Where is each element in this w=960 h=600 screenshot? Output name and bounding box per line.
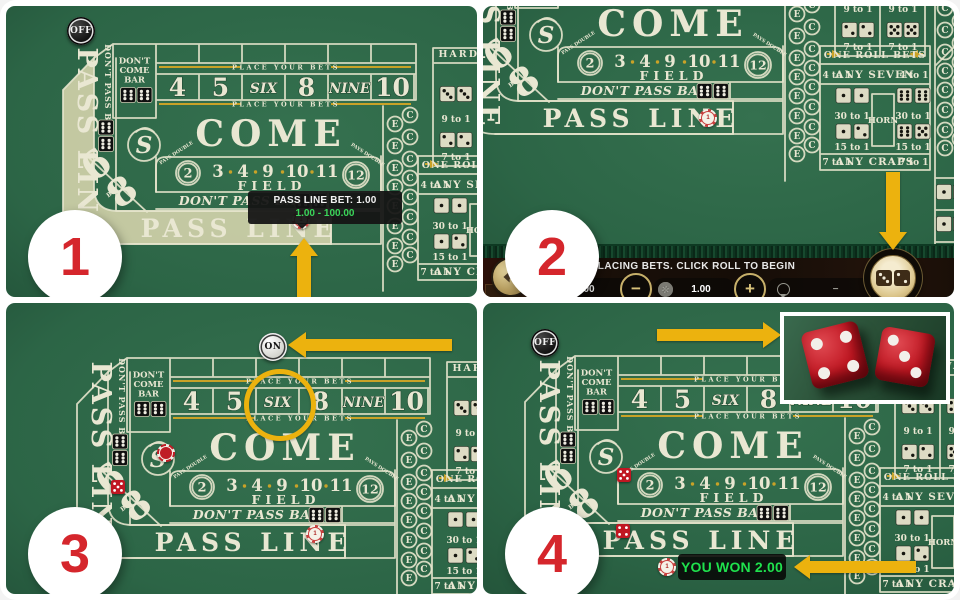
svg-text:E: E bbox=[406, 456, 413, 466]
horn-box: HORN bbox=[928, 538, 954, 548]
svg-text:11: 11 bbox=[718, 52, 741, 71]
point-box-4[interactable]: 4 bbox=[183, 387, 200, 416]
svg-text:E: E bbox=[794, 92, 801, 102]
place-your-bets-bottom: PLACE YOUR BETS bbox=[694, 413, 802, 421]
svg-text:E: E bbox=[854, 495, 861, 505]
svg-text:E: E bbox=[794, 32, 801, 42]
come-area[interactable]: COME bbox=[657, 425, 808, 467]
svg-text:E: E bbox=[794, 132, 801, 142]
svg-text:C: C bbox=[420, 565, 427, 575]
svg-text:C: C bbox=[406, 155, 413, 165]
one-roll-bets-area[interactable]: ONE ROLL BETS 4 to 1 ANY SEVEN 4 to 1 30… bbox=[823, 50, 931, 168]
award-icon bbox=[777, 283, 790, 296]
dont-come-bar-dice bbox=[121, 88, 136, 103]
dont-pass-row-dice bbox=[714, 84, 729, 99]
svg-text:9 to 1: 9 to 1 bbox=[844, 6, 873, 15]
one-roll-bets-area[interactable]: ONE ROLL BETS 4 to 1 ANY SEVEN 4 to 1 30… bbox=[435, 474, 477, 592]
point-box-5[interactable]: 5 bbox=[674, 385, 691, 414]
dont-pass-bar-row[interactable]: DON'T PASS BAR bbox=[640, 505, 770, 520]
point-box-10[interactable]: 10 bbox=[389, 387, 424, 416]
dont-pass-bar-row[interactable]: DON'T PASS BAR bbox=[580, 83, 710, 98]
svg-text:S: S bbox=[136, 132, 153, 159]
svg-text:E: E bbox=[794, 10, 801, 20]
hardways-border bbox=[433, 48, 477, 166]
bet-amount-display: 1.00 bbox=[653, 278, 735, 297]
svg-text:E: E bbox=[854, 476, 861, 486]
svg-text:E: E bbox=[392, 164, 399, 174]
svg-text:C: C bbox=[420, 507, 427, 517]
svg-text:E: E bbox=[406, 434, 413, 444]
dont-come-bar-dice bbox=[135, 402, 150, 417]
svg-text:E: E bbox=[392, 260, 399, 270]
one-roll-bets-area[interactable]: ONE ROLL BETS 4 to 1 ANY SEVEN 4 to 1 30… bbox=[421, 160, 477, 278]
svg-text:C: C bbox=[420, 547, 427, 557]
pass-line-row[interactable]: PASS LINE bbox=[603, 526, 800, 555]
svg-text:C: C bbox=[406, 213, 413, 223]
hardways-area[interactable]: HARDWAYS 9 to 1 9 to 1 7 to 1 7 to 1 bbox=[438, 49, 477, 163]
dont-come-bar-label[interactable]: DON'T bbox=[133, 371, 165, 381]
dont-come-bar-label[interactable]: BAR bbox=[124, 76, 146, 86]
one-roll-title: ONE ROLL BETS bbox=[884, 472, 954, 483]
svg-text:E: E bbox=[854, 432, 861, 442]
svg-text:C: C bbox=[808, 6, 815, 11]
dont-pass-vertical-dice bbox=[561, 449, 576, 464]
tutorial-grid: DON'T COME BAR PLACE YOUR BETS PLACE YOU… bbox=[0, 0, 960, 600]
svg-text:E: E bbox=[392, 142, 399, 152]
svg-text:9 to 1: 9 to 1 bbox=[442, 115, 471, 125]
field-label: FIELD bbox=[640, 68, 709, 83]
svg-text:C: C bbox=[406, 193, 413, 203]
step2-panel: DON'T COME BAR PLACE YOUR BETS PLACE YOU… bbox=[483, 6, 954, 297]
hardways-area[interactable]: HARDWAYS 9 to 1 9 to 1 7 to 1 7 to 1 bbox=[452, 363, 477, 477]
dont-pass-row-dice bbox=[309, 508, 324, 523]
svg-text:15 to 1: 15 to 1 bbox=[432, 253, 467, 263]
svg-text:12: 12 bbox=[361, 482, 378, 497]
point-box-8[interactable]: 8 bbox=[760, 385, 777, 414]
point-box-nine[interactable]: NINE bbox=[342, 395, 385, 411]
svg-text:C: C bbox=[406, 174, 413, 184]
tooltip-range: 1.00 - 100.00 bbox=[252, 208, 398, 219]
svg-text:9 to 1: 9 to 1 bbox=[456, 429, 477, 439]
any-craps: ANY CRAPS bbox=[447, 580, 477, 592]
dont-come-bar-dice bbox=[151, 402, 166, 417]
svg-text:C: C bbox=[420, 527, 427, 537]
svg-text:E: E bbox=[854, 572, 861, 582]
dont-pass-row-dice bbox=[757, 506, 772, 521]
casino-logo: S bbox=[530, 18, 562, 51]
svg-text:C: C bbox=[941, 6, 948, 14]
tooltip-title: PASS LINE BET: 1.00 bbox=[252, 195, 398, 206]
highlight-ring bbox=[244, 369, 316, 441]
svg-text:E: E bbox=[794, 54, 801, 64]
svg-text:4 to 1: 4 to 1 bbox=[900, 71, 929, 81]
dont-pass-vertical-dice bbox=[561, 432, 576, 447]
svg-text:12: 12 bbox=[809, 480, 826, 495]
photo-die-three bbox=[874, 326, 937, 389]
dont-pass-vertical-dice bbox=[501, 10, 516, 25]
one-roll-title: ONE ROLL BETS bbox=[436, 474, 477, 485]
svg-text:C: C bbox=[941, 106, 948, 116]
svg-text:E: E bbox=[854, 534, 861, 544]
photo-die-four bbox=[800, 320, 870, 390]
pays-double-left: PAYS DOUBLE bbox=[159, 140, 195, 166]
pays-double-left: PAYS DOUBLE bbox=[173, 454, 209, 480]
svg-text:3: 3 bbox=[212, 162, 223, 181]
any-seven: ANY SEVEN bbox=[432, 179, 477, 191]
svg-text:E: E bbox=[406, 478, 413, 488]
svg-text:12: 12 bbox=[347, 168, 364, 183]
dont-come-bar-label[interactable]: BAR bbox=[138, 390, 160, 400]
dont-pass-vertical-dice bbox=[113, 451, 128, 466]
one-roll-title: ONE ROLL BETS bbox=[422, 160, 477, 171]
place-your-bets-bottom: PLACE YOUR BETS bbox=[232, 101, 340, 109]
free-bet-display: − bbox=[767, 278, 873, 297]
svg-text:2: 2 bbox=[197, 481, 206, 496]
svg-text:3: 3 bbox=[674, 474, 685, 493]
svg-text:30 to 1: 30 to 1 bbox=[446, 536, 477, 546]
point-box-nine[interactable]: NINE bbox=[328, 81, 371, 97]
svg-text:E: E bbox=[406, 556, 413, 566]
svg-text:C: C bbox=[406, 233, 413, 243]
point-box-six[interactable]: SIX bbox=[712, 393, 741, 409]
ec-bets-column[interactable]: EC EC EC EC EC EC EC EC bbox=[402, 422, 432, 586]
svg-text:C: C bbox=[941, 67, 948, 77]
dont-pass-vertical-dice bbox=[99, 120, 114, 135]
svg-text:7 to 1: 7 to 1 bbox=[900, 158, 929, 168]
come-bet-chip[interactable] bbox=[157, 444, 175, 462]
point-box-six[interactable]: SIX bbox=[250, 81, 279, 97]
win-message: YOU WON 2.00 bbox=[678, 554, 786, 580]
step-number-badge: 4 bbox=[505, 507, 599, 594]
point-box-4[interactable]: 4 bbox=[169, 73, 186, 102]
svg-text:30 to 1: 30 to 1 bbox=[894, 534, 929, 544]
won-bet-chip[interactable]: 1 bbox=[658, 558, 676, 576]
place-your-bets-top: PLACE YOUR BETS bbox=[232, 64, 340, 72]
ec-bets-column[interactable]: EC EC EC EC EC EC EC EC bbox=[388, 108, 418, 272]
decrease-bet-button[interactable]: − bbox=[620, 273, 652, 297]
dont-come-bar-label[interactable]: COME bbox=[133, 380, 164, 390]
bet-value: 1.00 bbox=[677, 284, 725, 295]
dont-come-bar-label[interactable]: DON'T bbox=[581, 369, 613, 379]
dont-pass-row-dice bbox=[326, 508, 341, 523]
svg-text:E: E bbox=[406, 574, 413, 584]
svg-text:S: S bbox=[598, 444, 615, 471]
svg-text:C: C bbox=[941, 26, 948, 36]
free-bet-value: − bbox=[798, 284, 873, 295]
rolled-die bbox=[617, 468, 631, 482]
svg-text:3: 3 bbox=[226, 476, 237, 495]
svg-text:12: 12 bbox=[749, 58, 766, 73]
field-label: FIELD bbox=[252, 492, 321, 507]
any-craps: ANY CRAPS bbox=[433, 266, 477, 278]
svg-text:15 to 1: 15 to 1 bbox=[895, 143, 930, 153]
svg-text:3: 3 bbox=[614, 52, 625, 71]
svg-text:2: 2 bbox=[183, 167, 192, 182]
dont-come-bar-label[interactable]: DON'T bbox=[119, 57, 151, 67]
dont-pass-bar-row[interactable]: DON'T PASS BAR bbox=[192, 507, 322, 522]
svg-text:C: C bbox=[808, 23, 815, 33]
rolled-die bbox=[616, 524, 630, 538]
ec-bets-column[interactable]: EC EC EC EC EC EC EC EC bbox=[790, 6, 820, 162]
any-craps: ANY CRAPS bbox=[895, 578, 954, 590]
svg-text:C: C bbox=[808, 103, 815, 113]
svg-text:S: S bbox=[538, 22, 555, 49]
svg-text:C: C bbox=[868, 545, 875, 555]
dont-pass-vertical-dice bbox=[501, 27, 516, 42]
dont-pass-vertical-dice bbox=[113, 434, 128, 449]
svg-text:30 to 1: 30 to 1 bbox=[834, 112, 869, 122]
step-number-badge: 2 bbox=[505, 210, 599, 297]
dont-pass-row-dice bbox=[774, 506, 789, 521]
svg-text:C: C bbox=[808, 45, 815, 55]
svg-text:9 to 1: 9 to 1 bbox=[949, 427, 954, 437]
svg-text:C: C bbox=[941, 48, 948, 58]
hardways-border bbox=[447, 362, 477, 480]
svg-text:C: C bbox=[406, 133, 413, 143]
svg-text:11: 11 bbox=[778, 474, 801, 493]
pass-line-bet-chip[interactable]: 1 bbox=[699, 109, 717, 127]
step1-panel: DON'T COME BAR PLACE YOUR BETS PLACE YOU… bbox=[6, 6, 477, 297]
horn-box: HORN bbox=[868, 116, 898, 126]
field-label: FIELD bbox=[700, 490, 769, 505]
svg-text:11: 11 bbox=[330, 476, 353, 495]
svg-text:C: C bbox=[868, 486, 875, 496]
ec-bets-column-far[interactable]: CE CE CE CE CE CE CE CE bbox=[938, 6, 955, 156]
svg-text:9 to 1: 9 to 1 bbox=[904, 427, 933, 437]
rolled-die bbox=[111, 480, 125, 494]
dont-pass-row-dice bbox=[697, 84, 712, 99]
svg-text:30 to 1: 30 to 1 bbox=[895, 112, 930, 122]
svg-text:15 to 1: 15 to 1 bbox=[834, 143, 869, 153]
dont-come-bar-label[interactable]: COME bbox=[119, 66, 150, 76]
any-seven: ANY SEVEN bbox=[446, 493, 477, 505]
point-box-8[interactable]: 8 bbox=[298, 73, 315, 102]
point-box-4[interactable]: 4 bbox=[631, 385, 648, 414]
increase-bet-button[interactable]: + bbox=[734, 273, 766, 297]
svg-text:C: C bbox=[420, 447, 427, 457]
dice-photo-inset bbox=[780, 312, 950, 404]
svg-text:30 to 1: 30 to 1 bbox=[432, 222, 467, 232]
step-number-badge: 1 bbox=[28, 210, 122, 297]
svg-text:E: E bbox=[794, 112, 801, 122]
step4-panel: DON'T COME BAR PLACE YOUR BETS PLACE YOU… bbox=[483, 303, 954, 594]
step-number-badge: 3 bbox=[28, 507, 122, 594]
hardways-title: HARDWAYS bbox=[452, 363, 477, 374]
hardways-title: HARDWAYS bbox=[438, 49, 477, 60]
roll-dice-icon bbox=[870, 255, 916, 297]
svg-text:C: C bbox=[406, 251, 413, 261]
svg-text:C: C bbox=[406, 111, 413, 121]
svg-text:C: C bbox=[420, 488, 427, 498]
svg-text:E: E bbox=[854, 454, 861, 464]
svg-text:2: 2 bbox=[645, 479, 654, 494]
svg-text:C: C bbox=[808, 141, 815, 151]
dont-come-bar-dice bbox=[583, 400, 598, 415]
dont-pass-vertical-dice bbox=[99, 137, 114, 152]
point-puck: OFF bbox=[531, 329, 559, 357]
point-box-5[interactable]: 5 bbox=[212, 73, 229, 102]
svg-text:C: C bbox=[808, 123, 815, 133]
svg-text:C: C bbox=[868, 505, 875, 515]
svg-text:2: 2 bbox=[585, 57, 594, 72]
dont-come-bar-dice bbox=[137, 88, 152, 103]
far-one-roll-dice bbox=[937, 185, 955, 232]
any-seven: ANY SEVEN bbox=[894, 491, 954, 503]
point-box-10[interactable]: 10 bbox=[375, 73, 410, 102]
point-box-5[interactable]: 5 bbox=[226, 387, 243, 416]
svg-text:E: E bbox=[406, 516, 413, 526]
horn-box: HORN bbox=[466, 226, 477, 236]
svg-text:E: E bbox=[392, 242, 399, 252]
pass-line-bet-chip[interactable]: 1 bbox=[306, 525, 324, 543]
svg-text:E: E bbox=[406, 536, 413, 546]
point-puck: ON bbox=[259, 333, 287, 361]
point-puck: OFF bbox=[67, 17, 95, 45]
svg-text:9 to 1: 9 to 1 bbox=[889, 6, 918, 15]
svg-text:E: E bbox=[392, 120, 399, 130]
step3-panel: DON'T COME BAR PLACE YOUR BETS PLACE YOU… bbox=[6, 303, 477, 594]
svg-text:C: C bbox=[868, 423, 875, 433]
pays-double-left: PAYS DOUBLE bbox=[561, 30, 597, 56]
svg-text:E: E bbox=[794, 73, 801, 83]
ec-bets-column[interactable]: EC EC EC EC EC EC EC EC bbox=[850, 420, 880, 584]
svg-text:C: C bbox=[941, 144, 948, 154]
svg-text:C: C bbox=[420, 425, 427, 435]
svg-text:C: C bbox=[941, 86, 948, 96]
svg-text:E: E bbox=[794, 150, 801, 160]
svg-text:E: E bbox=[854, 514, 861, 524]
one-roll-title: ONE ROLL BETS bbox=[824, 50, 927, 61]
svg-text:C: C bbox=[868, 445, 875, 455]
dont-come-bar-label[interactable]: COME bbox=[581, 378, 612, 388]
chip-icon bbox=[658, 282, 673, 297]
svg-text:C: C bbox=[868, 467, 875, 477]
bet-tooltip: PASS LINE BET: 1.00 1.00 - 100.00 bbox=[248, 191, 402, 224]
svg-text:11: 11 bbox=[316, 162, 339, 181]
svg-text:15 to 1: 15 to 1 bbox=[446, 567, 477, 577]
svg-text:E: E bbox=[406, 497, 413, 507]
svg-text:C: C bbox=[941, 126, 948, 136]
dont-come-bar-label[interactable]: BAR bbox=[586, 388, 608, 398]
svg-text:C: C bbox=[808, 83, 815, 93]
dont-come-bar-dice bbox=[599, 400, 614, 415]
come-area[interactable]: COME bbox=[195, 113, 346, 155]
casino-logo: S bbox=[128, 128, 160, 161]
come-area[interactable]: COME bbox=[597, 6, 748, 45]
svg-text:C: C bbox=[808, 64, 815, 74]
svg-text:C: C bbox=[868, 525, 875, 535]
svg-text:C: C bbox=[420, 469, 427, 479]
